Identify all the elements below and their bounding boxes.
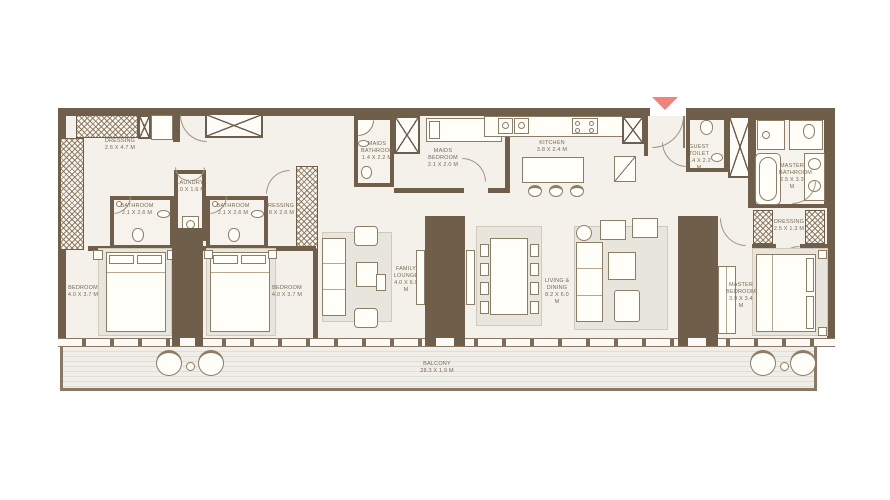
entry-arrow-icon xyxy=(652,97,678,110)
kitchen-island xyxy=(522,157,584,183)
wardrobe xyxy=(76,115,138,138)
round-side-table xyxy=(576,225,592,241)
room-dims-text: 1.8 x 2.6 M xyxy=(262,210,296,217)
room-name-text: DRESSING xyxy=(94,138,146,145)
side-table xyxy=(376,274,386,291)
bar-stool xyxy=(549,185,563,197)
room-name-text: BEDROOM xyxy=(270,285,304,292)
bar-stool xyxy=(528,185,542,197)
room-dims-text: 3.8 x 2.4 M xyxy=(532,147,572,154)
closet-block xyxy=(678,216,718,346)
room-dims-text: 2.6 x 4.7 M xyxy=(94,145,146,152)
closet-block xyxy=(172,228,203,346)
floor-plan: DRESSING 2.6 x 4.7 M BATHROOM 2.1 x 2.6 … xyxy=(0,0,890,500)
room-label-bathroom-2: BATHROOM 2.1 x 2.6 M xyxy=(210,203,256,217)
nightstand xyxy=(204,250,213,259)
room-dims-text: 2.1 x 2.0 M xyxy=(422,162,464,169)
burner xyxy=(518,122,525,129)
dining-chair xyxy=(530,263,539,276)
burner xyxy=(575,128,580,133)
room-name-text: KITCHEN xyxy=(532,140,572,147)
balcony-threshold xyxy=(180,338,195,346)
pantry-unit xyxy=(614,156,636,182)
room-label-kitchen: KITCHEN 3.8 x 2.4 M xyxy=(532,140,572,154)
pillow xyxy=(429,121,440,139)
room-dims-text: 1.4 x 2.2 M xyxy=(687,158,711,172)
balcony-threshold xyxy=(688,338,706,346)
ottoman xyxy=(632,218,658,238)
balcony-chair xyxy=(750,350,776,376)
wall xyxy=(644,116,648,156)
room-dims-text: 2.1 x 2.6 M xyxy=(114,210,160,217)
room-dims-text: 1.0 x 1.6 M xyxy=(174,187,206,194)
armchair xyxy=(354,308,378,328)
wardrobe xyxy=(296,166,318,250)
dining-chair xyxy=(530,301,539,314)
dining-chair xyxy=(480,282,489,295)
room-dims-text: 4.0 x 3.7 M xyxy=(270,292,304,299)
nightstand xyxy=(818,327,827,336)
room-name-text: BATHROOM xyxy=(114,203,160,210)
room-dims-text: 4.0 x 3.7 M xyxy=(66,292,100,299)
room-label-dressing-mid: DRESSING 1.8 x 2.6 M xyxy=(262,203,296,217)
dining-chair xyxy=(530,282,539,295)
room-label-guest-toilet: GUEST TOILET 1.4 x 2.2 M xyxy=(687,144,711,173)
blanket-line xyxy=(211,272,269,273)
balcony-chair xyxy=(790,350,816,376)
room-dims-text: 2.5 x 1.3 M xyxy=(772,226,806,233)
wall xyxy=(827,108,835,346)
bar-stool xyxy=(570,185,584,197)
wardrobe xyxy=(805,210,825,244)
room-name-text: MASTER BEDROOM xyxy=(726,282,756,296)
room-dims-text: 3.9 x 3.4 M xyxy=(726,296,756,310)
room-label-living-dining: LIVING & DINING 8.2 x 6.0 M xyxy=(542,278,572,307)
room-label-bathroom-1: BATHROOM 2.1 x 2.6 M xyxy=(114,203,160,217)
shaft-closet xyxy=(205,113,263,138)
room-label-balcony: BALCONY 28.3 x 1.9 M xyxy=(397,361,477,375)
room-dims-text: 8.2 x 6.0 M xyxy=(542,292,572,306)
sofa xyxy=(576,242,603,322)
room-name-text: DRESSING xyxy=(772,219,806,226)
sofa-cushion-line xyxy=(323,263,345,264)
blanket-line xyxy=(107,272,165,273)
tv-unit xyxy=(416,250,425,305)
wardrobe xyxy=(60,138,84,250)
room-label-maids-bedroom: MAIDS BEDROOM 2.1 x 2.0 M xyxy=(422,148,464,169)
burner xyxy=(589,121,594,126)
room-dims-text: 1.4 x 2.2 M xyxy=(361,155,393,162)
closet xyxy=(151,115,173,140)
balcony-chair xyxy=(156,350,182,376)
burner xyxy=(589,128,594,133)
dining-chair xyxy=(480,301,489,314)
shaft-closet xyxy=(138,115,151,139)
room-label-bedroom-2: BEDROOM 4.0 x 3.7 M xyxy=(270,285,304,299)
room-name-text: BATHROOM xyxy=(210,203,256,210)
dining-chair xyxy=(480,244,489,257)
dining-table xyxy=(490,238,528,315)
shaft-closet xyxy=(622,116,644,144)
sofa-cushion-line xyxy=(577,295,602,296)
closet-block xyxy=(425,216,465,346)
room-name-text: DRESSING xyxy=(262,203,296,210)
room-dims-text: 2.1 x 2.6 M xyxy=(210,210,256,217)
room-label-dressing-left: DRESSING 2.6 x 4.7 M xyxy=(94,138,146,152)
coffee-table xyxy=(356,262,378,287)
room-name-text: BEDROOM xyxy=(66,285,100,292)
bed xyxy=(210,252,270,332)
shower-head xyxy=(762,131,770,139)
side-table xyxy=(608,252,636,280)
pillow xyxy=(109,255,134,264)
sofa xyxy=(322,238,346,316)
balcony-table xyxy=(186,362,195,371)
toilet xyxy=(700,120,713,135)
ottoman xyxy=(600,220,626,240)
burner xyxy=(575,121,580,126)
armchair xyxy=(354,226,378,246)
blanket-line xyxy=(772,255,773,331)
toilet xyxy=(228,228,240,242)
room-label-bedroom-1: BEDROOM 4.0 x 3.7 M xyxy=(66,285,100,299)
room-name-text: MAIDS BEDROOM xyxy=(422,148,464,162)
dining-chair xyxy=(480,263,489,276)
room-label-maids-bathroom: MAIDS BATHROOM 1.4 x 2.2 M xyxy=(361,141,393,162)
wall xyxy=(173,114,180,142)
balcony-threshold xyxy=(436,338,454,346)
wall xyxy=(488,188,510,193)
bed xyxy=(106,252,166,332)
dining-chair xyxy=(530,244,539,257)
room-name-text: BALCONY xyxy=(397,361,477,368)
wardrobe xyxy=(753,210,773,244)
room-name-text: LAUNDRY xyxy=(174,180,206,187)
room-label-master-bedroom: MASTER BEDROOM 3.9 x 3.4 M xyxy=(726,282,756,311)
burner xyxy=(502,122,509,129)
wall xyxy=(394,188,464,193)
nightstand xyxy=(268,250,277,259)
room-dims-text: 28.3 x 1.9 M xyxy=(397,368,477,375)
toilet xyxy=(361,166,372,179)
room-label-dressing-master: DRESSING 2.5 x 1.3 M xyxy=(772,219,806,233)
room-name-text: LIVING & DINING xyxy=(542,278,572,292)
balcony-table xyxy=(780,362,789,371)
toilet xyxy=(132,228,144,242)
sink xyxy=(808,158,821,170)
pillow xyxy=(213,255,238,264)
tv-unit xyxy=(466,250,475,305)
wall xyxy=(313,250,318,338)
pillow xyxy=(806,296,814,329)
sofa-cushion-line xyxy=(577,268,602,269)
pillow xyxy=(241,255,266,264)
shaft-closet xyxy=(394,116,420,154)
toilet xyxy=(803,124,815,139)
chaise-lounge xyxy=(614,290,640,322)
room-label-laundry: LAUNDRY 1.0 x 1.6 M xyxy=(174,180,206,194)
nightstand xyxy=(818,250,827,259)
pillow xyxy=(137,255,162,264)
room-name-text: GUEST TOILET xyxy=(687,144,711,158)
balcony-chair xyxy=(198,350,224,376)
room-name-text: MASTER BATHROOM xyxy=(779,163,805,177)
room-name-text: MAIDS BATHROOM xyxy=(361,141,393,155)
pillow xyxy=(806,258,814,292)
sink xyxy=(711,153,723,162)
sofa-cushion-line xyxy=(323,289,345,290)
bathtub-basin xyxy=(759,157,777,201)
nightstand xyxy=(93,250,103,260)
